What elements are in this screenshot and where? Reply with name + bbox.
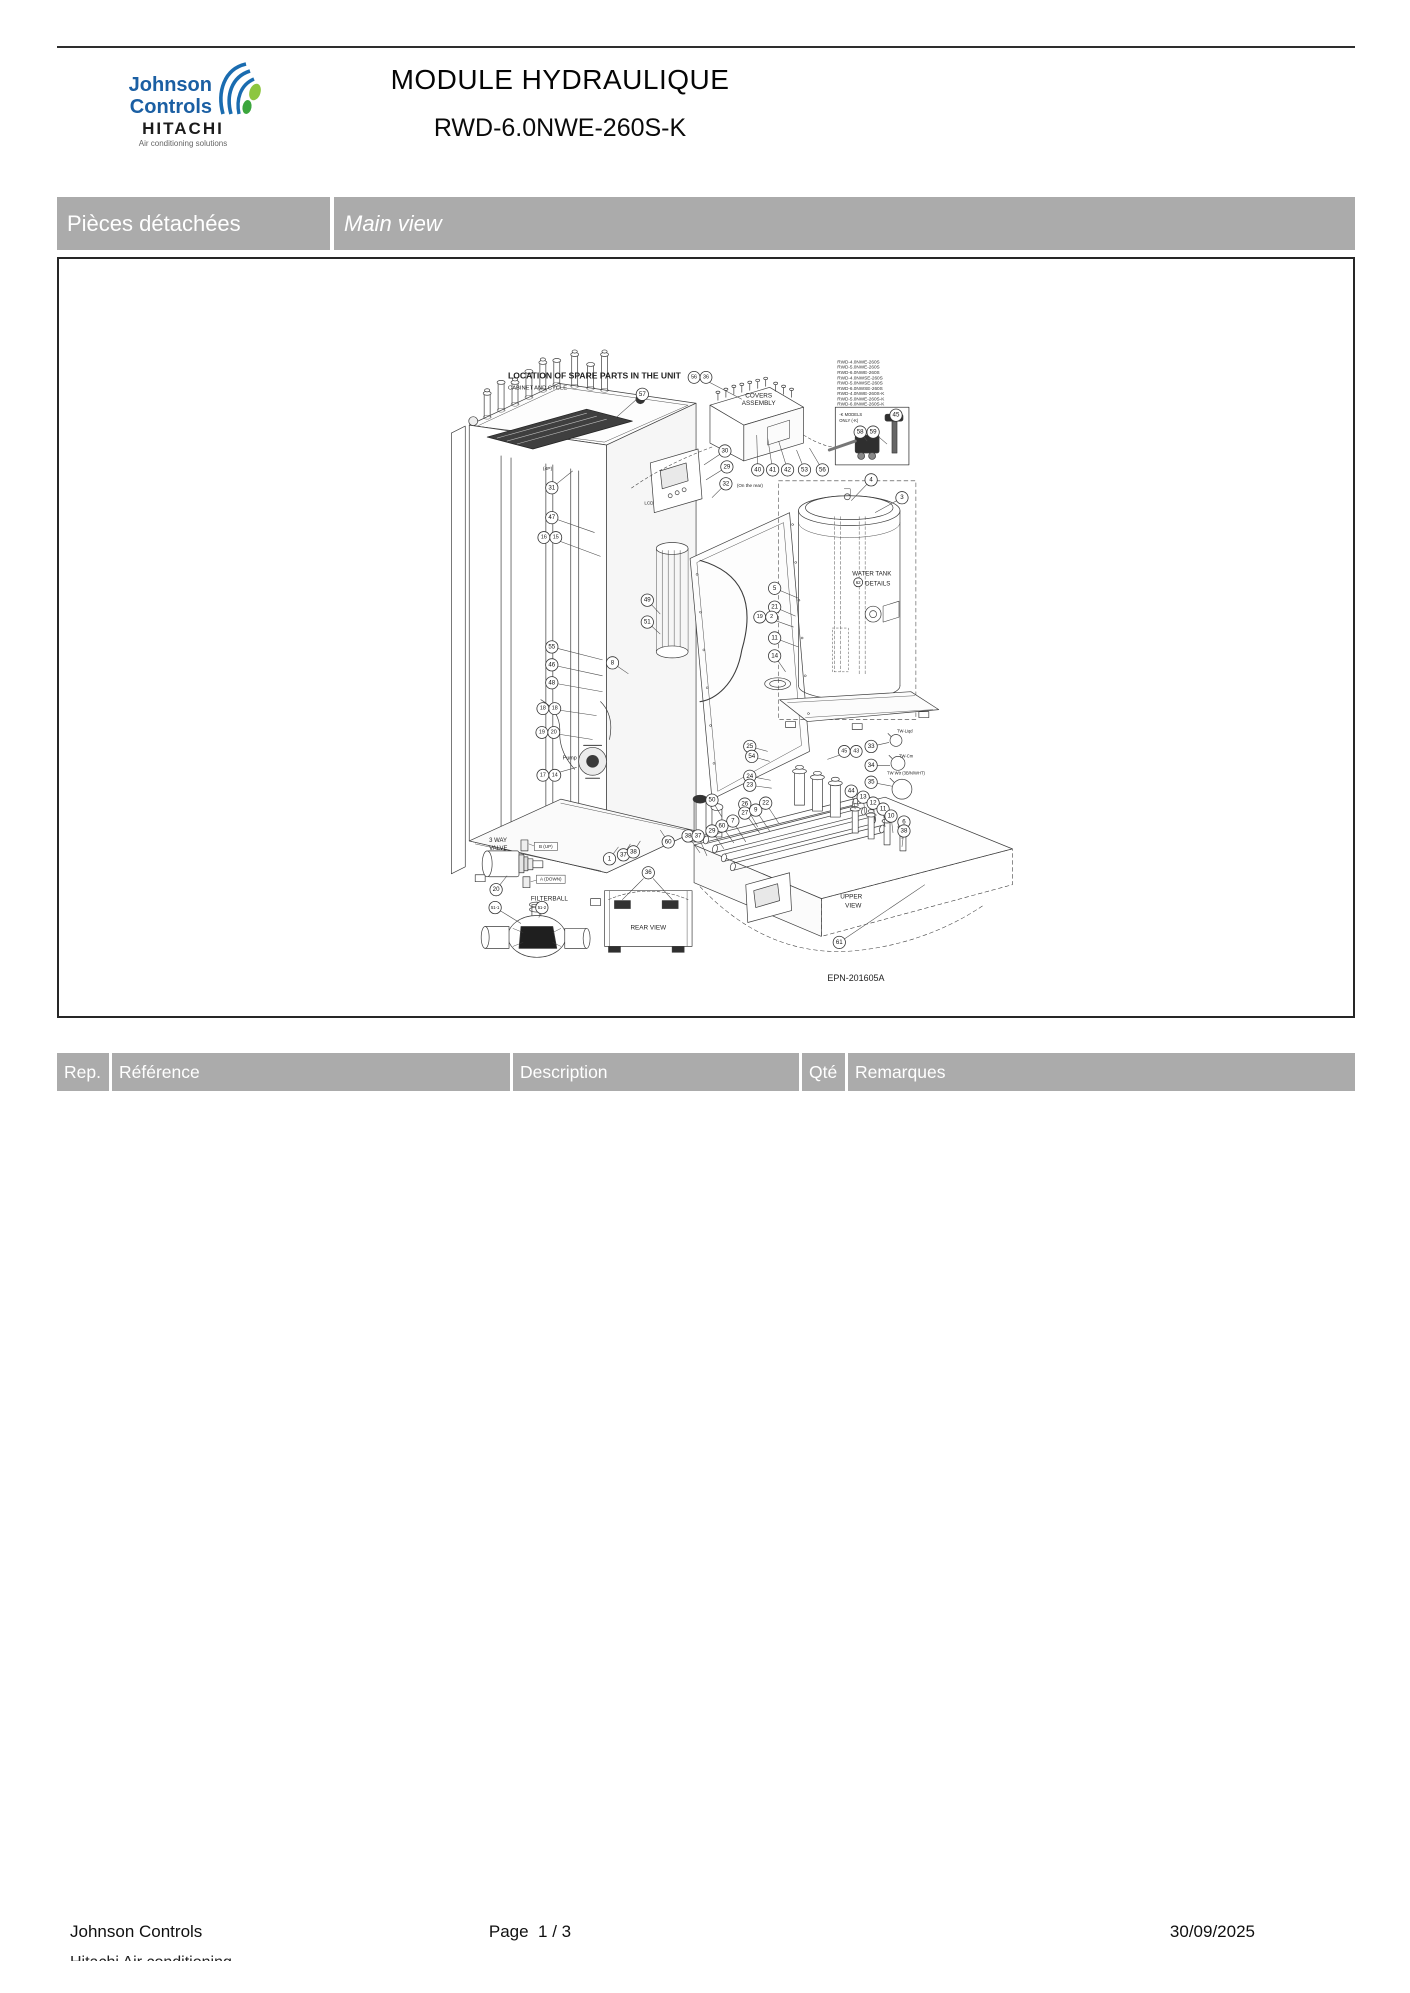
diagram-label: TW Wtr (3B/N/WHT) <box>887 770 925 775</box>
svg-text:51-1: 51-1 <box>491 905 500 910</box>
footer-page-indicator: Page 1 / 3 <box>430 1922 630 1942</box>
diagram-label: VALVE <box>489 846 507 852</box>
svg-text:19: 19 <box>757 614 763 620</box>
diagram-label: -K MODELS <box>839 412 862 417</box>
model-list-line: RWD-5.0NWE-260S-K <box>837 396 885 401</box>
table-header-r-f-rence: Référence <box>112 1053 510 1091</box>
svg-text:61: 61 <box>836 939 843 946</box>
svg-text:49: 49 <box>644 597 651 604</box>
svg-text:60: 60 <box>718 823 725 830</box>
svg-text:36: 36 <box>703 374 709 380</box>
diagram-label: B (UP) <box>539 844 553 849</box>
diagram-label: (4P) <box>543 466 553 472</box>
table-header-remarques: Remarques <box>848 1053 1355 1091</box>
callout-3: 3 <box>896 492 908 504</box>
svg-text:31: 31 <box>548 484 555 491</box>
callout-5: 5 <box>768 582 780 594</box>
callout-4: 4 <box>865 474 877 486</box>
callout-29: 29 <box>721 461 733 473</box>
svg-text:30: 30 <box>721 447 728 454</box>
callout-50: 50 <box>706 794 718 806</box>
svg-text:41: 41 <box>769 466 776 473</box>
callout-46: 46 <box>546 659 558 671</box>
svg-text:22: 22 <box>762 800 769 807</box>
svg-text:14: 14 <box>771 652 778 659</box>
diagram-label: ASSEMBLY <box>742 400 777 407</box>
top-rule <box>57 46 1355 48</box>
model-list: RWD-4.0NWE-260SRWD-5.0NWE-260SRWD-6.0NWE… <box>837 359 885 406</box>
callout-27: 27 <box>739 807 751 819</box>
callout-30: 30 <box>719 445 731 457</box>
document-subtitle: RWD-6.0NWE-260S-K <box>300 114 820 143</box>
svg-text:29: 29 <box>709 827 716 834</box>
diagram-label: Pump <box>563 755 577 761</box>
callout-55: 55 <box>546 641 558 653</box>
callout-38: 38 <box>627 846 639 858</box>
callout-58: 58 <box>854 426 866 438</box>
callout-23: 23 <box>744 779 756 791</box>
svg-text:37: 37 <box>620 851 627 858</box>
svg-text:50: 50 <box>709 797 716 804</box>
diagram-label: (On the rear) <box>737 483 764 488</box>
diagram-label: EPN-201605A <box>827 973 884 983</box>
svg-text:2: 2 <box>770 614 773 620</box>
johnson-controls-wordmark: Johnson Controls <box>112 74 212 118</box>
footer-company-line2-truncated: Hitachi Air conditioning <box>70 1954 330 1961</box>
model-list-line: RWD-4.0NWE-260S-K <box>837 391 885 396</box>
callout-7: 7 <box>727 815 739 827</box>
diagram-label: ONLY (-K) <box>839 418 859 423</box>
callout-53: 53 <box>798 464 810 476</box>
svg-text:45: 45 <box>893 412 900 419</box>
svg-text:43: 43 <box>853 748 859 754</box>
parts-catalog-page: Johnson Controls HITACHI Air conditionin… <box>0 0 1410 1993</box>
svg-text:54: 54 <box>748 753 755 760</box>
svg-text:58: 58 <box>857 429 864 436</box>
svg-text:33: 33 <box>868 743 875 750</box>
svg-text:51: 51 <box>644 619 651 626</box>
svg-text:55: 55 <box>548 643 555 650</box>
section-bar-left-label: Pièces détachées <box>57 197 330 250</box>
exploded-parts-diagram: RWD-4.0NWE-260SRWD-5.0NWE-260SRWD-6.0NWE… <box>59 259 1353 1016</box>
table-header-qt-: Qté <box>802 1053 845 1091</box>
callout-61: 61 <box>833 936 845 948</box>
svg-text:19: 19 <box>539 729 545 735</box>
svg-text:11: 11 <box>771 634 778 641</box>
svg-text:38: 38 <box>901 827 908 834</box>
svg-text:56: 56 <box>819 466 826 473</box>
svg-text:32: 32 <box>722 480 729 487</box>
svg-text:62: 62 <box>856 580 861 585</box>
callout-41: 41 <box>766 464 778 476</box>
svg-text:8: 8 <box>611 659 615 666</box>
hitachi-tagline: Air conditioning solutions <box>108 139 258 148</box>
model-list-line: RWD-6.0NWSE-260S <box>837 386 882 391</box>
section-bar: Pièces détachées Main view <box>57 197 1355 250</box>
callout-48: 48 <box>546 677 558 689</box>
callout-44: 44 <box>845 785 857 797</box>
svg-text:57: 57 <box>639 391 646 398</box>
callout-45: 45 <box>890 409 902 421</box>
svg-text:47: 47 <box>548 514 555 521</box>
svg-text:20: 20 <box>551 729 557 735</box>
footer-page-value: 1 / 3 <box>538 1922 571 1941</box>
callout-59: 59 <box>867 426 879 438</box>
svg-text:59: 59 <box>870 429 877 436</box>
callout-47: 47 <box>546 511 558 523</box>
callout-35: 35 <box>865 776 877 788</box>
svg-text:48: 48 <box>548 679 555 686</box>
model-list-line: RWD-6.0NWE-260S <box>837 370 879 375</box>
diagram-label: TW-Cm <box>899 753 914 758</box>
model-list-line: RWD-5.0NWE-260S <box>837 365 879 370</box>
brand-line1: Johnson <box>112 74 212 96</box>
diagram-label: DETAILS <box>865 580 890 587</box>
diagram-label: WATER TANK <box>852 570 892 577</box>
footer-page-label: Page <box>489 1922 529 1941</box>
section-bar-right-label: Main view <box>334 197 1355 250</box>
brand-line2: Controls <box>112 96 212 118</box>
svg-text:21: 21 <box>771 604 778 611</box>
svg-text:25: 25 <box>746 743 753 750</box>
callout-31: 31 <box>546 482 558 494</box>
svg-text:4: 4 <box>869 476 873 483</box>
diagram-label: REAR VIEW <box>630 924 666 931</box>
callout-37: 37 <box>692 830 704 842</box>
parts-table-header: Rep.RéférenceDescriptionQtéRemarques <box>57 1053 1355 1091</box>
svg-text:16: 16 <box>541 535 547 541</box>
svg-text:37: 37 <box>695 832 702 839</box>
svg-text:29: 29 <box>723 463 730 470</box>
svg-text:42: 42 <box>784 466 791 473</box>
svg-text:11: 11 <box>880 806 887 813</box>
svg-text:17: 17 <box>540 772 546 778</box>
callout-34: 34 <box>865 759 877 771</box>
svg-text:7: 7 <box>731 818 735 825</box>
diagram-label: CABINET AND CYCLE <box>508 385 567 391</box>
model-list-line: RWD-6.0NWE-260S-K <box>837 402 885 407</box>
callout-22: 22 <box>760 797 772 809</box>
callout-40: 40 <box>752 464 764 476</box>
callout-49: 49 <box>641 594 653 606</box>
diagram-label: 3 WAY <box>489 838 507 844</box>
svg-text:53: 53 <box>801 466 808 473</box>
svg-text:45: 45 <box>841 748 847 754</box>
svg-text:27: 27 <box>741 810 748 817</box>
callout-56|36: 5636 <box>688 371 712 383</box>
callout-11: 11 <box>768 632 780 644</box>
footer-date: 30/09/2025 <box>1055 1922 1255 1942</box>
document-title: MODULE HYDRAULIQUE <box>300 64 820 96</box>
callout-38: 38 <box>898 825 910 837</box>
callout-51-2: 51-2 <box>536 901 548 913</box>
callout-29: 29 <box>706 825 718 837</box>
model-list-line: RWD-5.0NWSE-260S <box>837 381 882 386</box>
diagram-label: FILTERBALL <box>531 896 568 903</box>
svg-text:9: 9 <box>754 807 758 814</box>
callout-51-1: 51-1 <box>489 901 501 913</box>
svg-text:40: 40 <box>754 466 761 473</box>
svg-text:18: 18 <box>552 706 558 712</box>
svg-text:46: 46 <box>548 661 555 668</box>
hitachi-wordmark: HITACHI <box>108 119 258 139</box>
callout-33: 33 <box>865 740 877 752</box>
svg-text:44: 44 <box>848 788 855 795</box>
callout-57: 57 <box>636 388 648 400</box>
svg-text:38: 38 <box>685 832 692 839</box>
callout-42: 42 <box>781 464 793 476</box>
callout-45|43: 4543 <box>838 745 862 757</box>
svg-text:34: 34 <box>868 762 875 769</box>
svg-text:3: 3 <box>900 494 904 501</box>
diagram-label: TW-Liqd <box>897 728 913 733</box>
svg-text:20: 20 <box>493 886 500 893</box>
callout-60: 60 <box>662 836 674 848</box>
model-list-line: RWD-4.0NWE-260S <box>837 359 879 364</box>
diagram-label: LCD <box>644 501 654 506</box>
table-header-rep-: Rep. <box>57 1053 109 1091</box>
diagram-frame: RWD-4.0NWE-260SRWD-5.0NWE-260SRWD-6.0NWE… <box>57 257 1355 1018</box>
diagram-label: COVERS <box>745 392 772 399</box>
table-header-description: Description <box>513 1053 799 1091</box>
callout-36: 36 <box>642 867 654 879</box>
diagram-label: VIEW <box>845 903 861 910</box>
callout-62: 62 <box>854 578 863 587</box>
callout-8: 8 <box>606 657 618 669</box>
svg-text:60: 60 <box>665 838 672 845</box>
callout-14: 14 <box>768 650 780 662</box>
callout-1: 1 <box>603 853 615 865</box>
svg-text:13: 13 <box>860 794 867 801</box>
svg-text:14: 14 <box>552 772 558 778</box>
callout-54: 54 <box>746 750 758 762</box>
diagram-label: UPPER <box>840 894 862 901</box>
svg-text:5: 5 <box>773 585 777 592</box>
johnson-controls-swirl-icon <box>216 60 262 125</box>
svg-text:35: 35 <box>868 779 875 786</box>
svg-text:12: 12 <box>870 800 877 807</box>
svg-text:38: 38 <box>630 848 637 855</box>
svg-text:18: 18 <box>540 706 546 712</box>
diagram-label: A (DOWN) <box>540 877 562 882</box>
svg-text:56: 56 <box>691 374 697 380</box>
svg-text:1: 1 <box>608 855 612 862</box>
svg-text:23: 23 <box>746 782 753 789</box>
callout-10: 10 <box>885 810 897 822</box>
svg-text:15: 15 <box>553 535 559 541</box>
svg-text:36: 36 <box>645 869 652 876</box>
callout-56: 56 <box>816 464 828 476</box>
footer-company: Johnson Controls <box>70 1922 202 1942</box>
svg-text:51-2: 51-2 <box>538 905 547 910</box>
diagram-label: LOCATION OF SPARE PARTS IN THE UNIT <box>508 370 682 380</box>
callout-32: 32 <box>720 478 732 490</box>
model-list-line: RWD-4.0NWSE-260S <box>837 375 882 380</box>
callout-51: 51 <box>641 616 653 628</box>
svg-text:10: 10 <box>888 813 895 820</box>
callout-20: 20 <box>490 884 502 896</box>
